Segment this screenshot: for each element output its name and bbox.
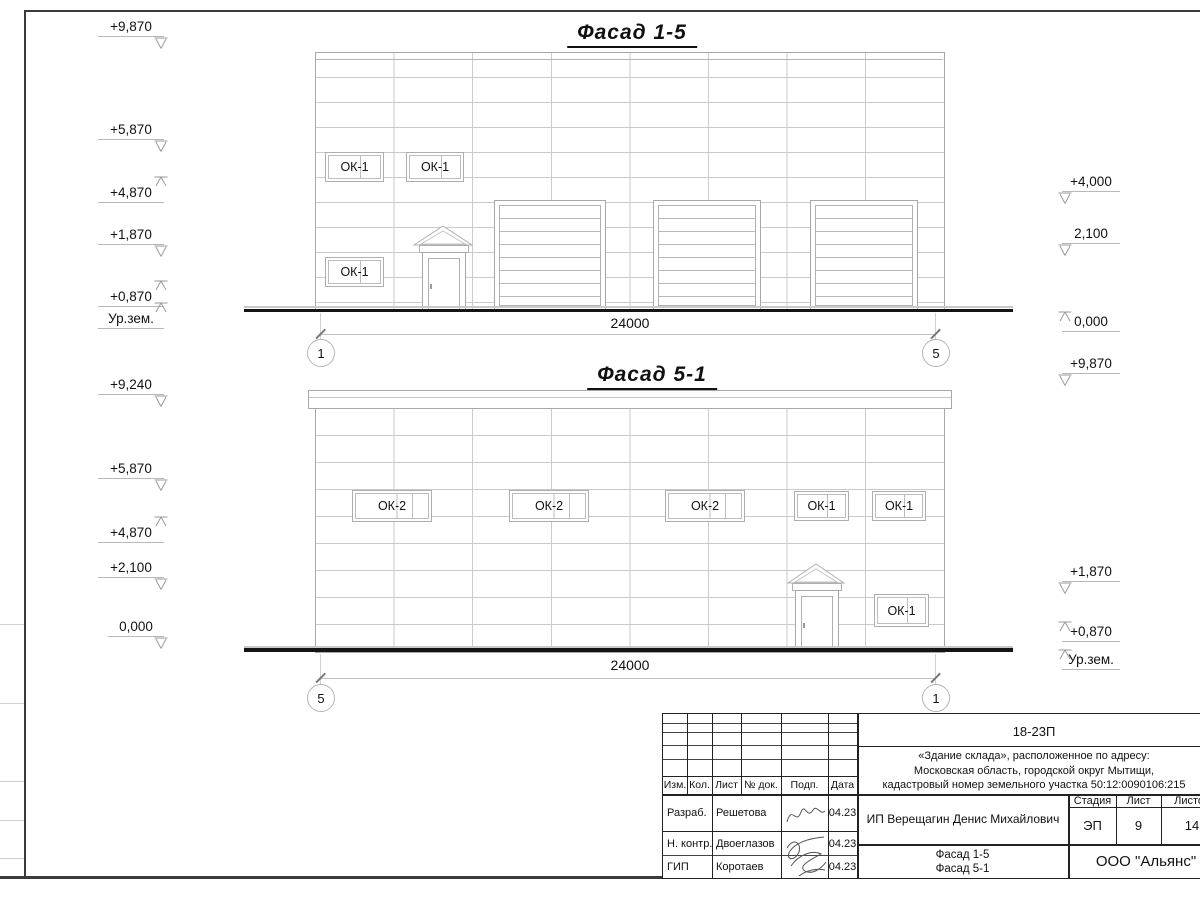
tb-sheets-value: 14 [1161, 807, 1200, 844]
extension-line [935, 654, 936, 685]
title-block: Изм. Кол. Лист № док. Подп. Дата Разраб.… [662, 713, 1200, 879]
window-ok2: ОК-2 [352, 490, 432, 522]
elevation-mark: +2,100 [98, 560, 164, 578]
window-ok1: ОК-1 [794, 491, 849, 521]
window-ok1: ОК-1 [872, 491, 926, 521]
axis-marker: 1 [307, 339, 335, 367]
tb-doc-title: Фасад 1-5 Фасад 5-1 [857, 848, 1068, 876]
tb-address-line1: «Здание склада», расположенное по адресу… [857, 749, 1200, 764]
tb-sheet-value: 9 [1116, 807, 1161, 844]
elevation-mark: +9,240 [98, 377, 164, 395]
tb-role: Н. контр. [667, 833, 713, 854]
tb-col-kol: Кол. [687, 776, 712, 794]
window-label: ОК-1 [873, 492, 925, 520]
tb-date: 04.23 [828, 798, 857, 828]
window-ok1: ОК-1 [406, 152, 464, 182]
elevation-mark: 2,100 [1062, 226, 1120, 244]
elevation-mark: 0,000 [1062, 314, 1120, 332]
elevation-mark: +1,870 [1062, 564, 1120, 582]
tb-doc-title-line2: Фасад 5-1 [857, 862, 1068, 876]
tb-company: ООО "Альянс" [1069, 845, 1200, 878]
tb-name: Решетова [716, 798, 780, 828]
window-label: ОК-1 [407, 153, 463, 181]
elevation-mark: +1,870 [98, 227, 164, 245]
tb-client: ИП Верещагин Денис Михайлович [861, 796, 1065, 842]
window-label: ОК-2 [510, 491, 588, 521]
tb-sheets-label: Листов [1161, 794, 1200, 807]
extension-line [935, 313, 936, 341]
frame-top [24, 10, 1200, 12]
elevation-mark: Ур.зем. [1062, 652, 1120, 670]
window-label: ОК-1 [326, 258, 383, 286]
window-label: ОК-2 [353, 491, 431, 521]
tb-stage-value: ЭП [1069, 807, 1116, 844]
elevation-mark: +4,870 [98, 185, 164, 203]
door-handle [430, 284, 432, 289]
elevation-mark: +5,870 [98, 122, 164, 140]
axis-marker: 1 [922, 684, 950, 712]
garage-gate [810, 200, 918, 311]
elevation-mark: +9,870 [98, 19, 164, 37]
facade-top-title: Фасад 1-5 [567, 21, 697, 48]
tb-role: Разраб. [667, 798, 713, 828]
margin-line [0, 820, 24, 821]
tb-sheet-label: Лист [1116, 794, 1161, 807]
axis-marker: 5 [922, 339, 950, 367]
margin-line [0, 624, 24, 625]
window-ok1: ОК-1 [325, 257, 384, 287]
door-leaf [428, 258, 460, 312]
facade-bottom-wall [315, 408, 945, 653]
dimension-text: 24000 [560, 657, 700, 673]
window-label: ОК-2 [666, 491, 744, 521]
tb-name: Коротаев [716, 856, 780, 877]
tb-address: «Здание склада», расположенное по адресу… [857, 749, 1200, 793]
window-ok1: ОК-1 [325, 152, 384, 182]
extension-line [320, 313, 321, 341]
door-pediment [787, 562, 845, 584]
margin-line [0, 781, 24, 782]
tb-col-izm: Изм. [663, 776, 687, 794]
signature [779, 832, 829, 878]
elevation-mark: Ур.зем. [98, 311, 164, 329]
door-handle [803, 623, 805, 628]
door-leaf [801, 596, 833, 652]
tb-col-list: Лист [712, 776, 741, 794]
window-ok1: ОК-1 [874, 594, 929, 627]
dimension-text: 24000 [560, 315, 700, 331]
ground-line [244, 309, 1013, 313]
elevation-mark: +0,870 [1062, 624, 1120, 642]
window-label: ОК-1 [795, 492, 848, 520]
tb-doc-title-line1: Фасад 1-5 [857, 848, 1068, 862]
tb-role: ГИП [667, 856, 713, 877]
elevation-mark: +5,870 [98, 461, 164, 479]
facade-bottom-parapet [308, 390, 952, 409]
elevation-mark: +9,870 [1062, 356, 1120, 374]
window-ok2: ОК-2 [665, 490, 745, 522]
tb-date: 04.23 [828, 833, 857, 854]
tb-project-code: 18-23П [857, 718, 1200, 744]
window-ok2: ОК-2 [509, 490, 589, 522]
drawing-sheet: { "facades": { "top": { "title": "Фасад … [0, 0, 1200, 900]
tb-col-podp: Подп. [781, 776, 828, 794]
tb-address-line3: кадастровый номер земельного участка 50:… [857, 778, 1200, 793]
frame-left [24, 10, 26, 878]
window-label: ОК-1 [875, 595, 928, 626]
facade-bottom-title: Фасад 5-1 [587, 363, 717, 390]
ground-line [244, 648, 1013, 652]
extension-line [320, 654, 321, 685]
window-label: ОК-1 [326, 153, 383, 181]
elevation-mark: +4,000 [1062, 174, 1120, 192]
garage-gate [653, 200, 761, 311]
door-pediment [413, 224, 473, 246]
tb-col-doc: № док. [741, 776, 781, 794]
tb-name: Двоеглазов [716, 833, 780, 854]
tb-address-line2: Московская область, городской округ Мыти… [857, 764, 1200, 779]
margin-line [0, 703, 24, 704]
margin-line [0, 858, 24, 859]
axis-marker: 5 [307, 684, 335, 712]
tb-col-data: Дата [828, 776, 857, 794]
dimension-line [320, 678, 935, 679]
tb-date: 04.23 [828, 856, 857, 877]
elevation-mark: +4,870 [98, 525, 164, 543]
facade-top-roof-line [315, 59, 943, 60]
tb-stage-label: Стадия [1069, 794, 1116, 807]
dimension-line [320, 334, 935, 335]
signature [782, 798, 828, 830]
elevation-mark: 0,000 [108, 619, 164, 637]
garage-gate [494, 200, 606, 311]
